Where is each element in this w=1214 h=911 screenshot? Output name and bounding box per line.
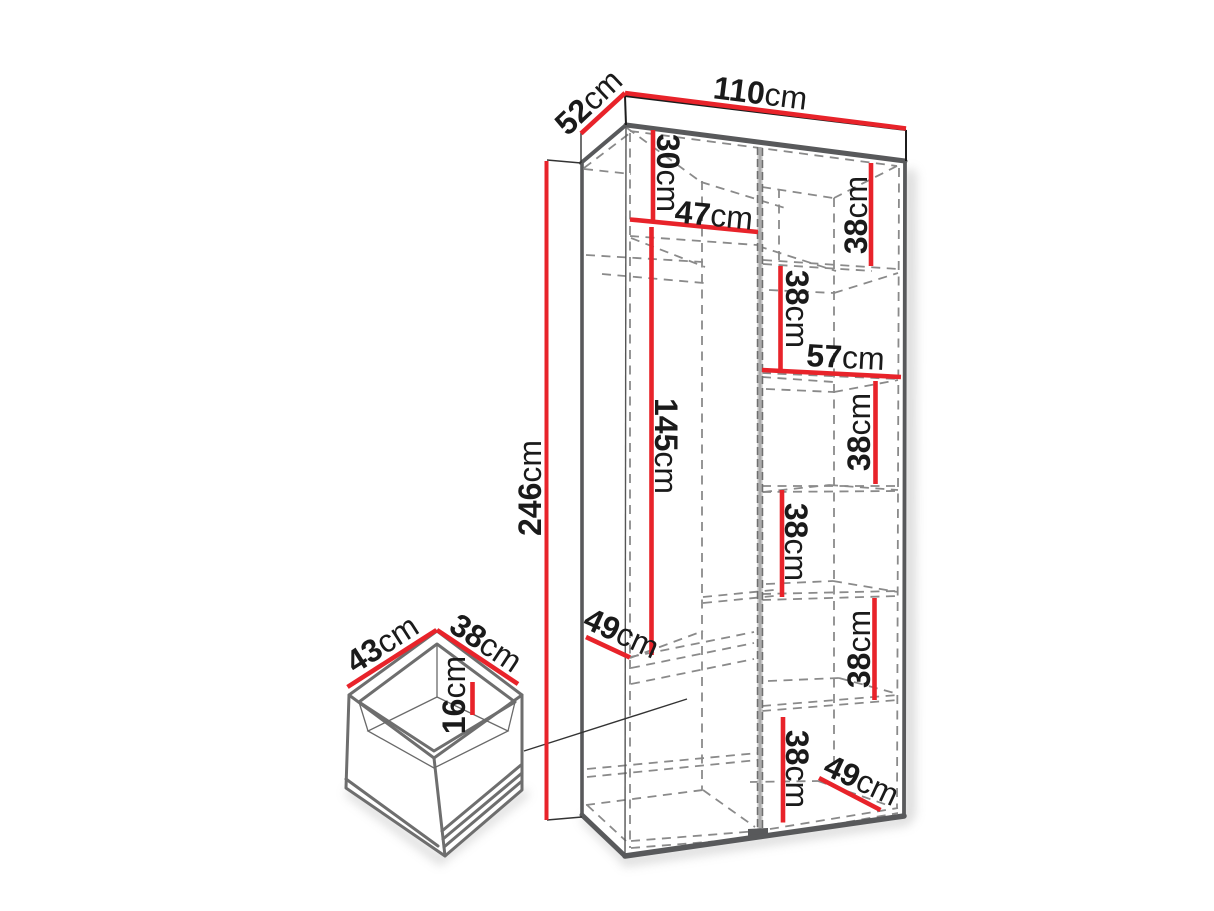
svg-text:47cm: 47cm [673, 193, 754, 236]
svg-text:38cm: 38cm [841, 393, 877, 471]
svg-text:38cm: 38cm [778, 503, 814, 581]
svg-text:145cm: 145cm [648, 398, 684, 494]
svg-text:38cm: 38cm [779, 730, 815, 808]
svg-text:38cm: 38cm [838, 176, 874, 254]
svg-text:57cm: 57cm [806, 337, 886, 377]
svg-text:16cm: 16cm [436, 656, 472, 734]
svg-text:246cm: 246cm [512, 440, 548, 536]
svg-text:38cm: 38cm [841, 610, 877, 688]
